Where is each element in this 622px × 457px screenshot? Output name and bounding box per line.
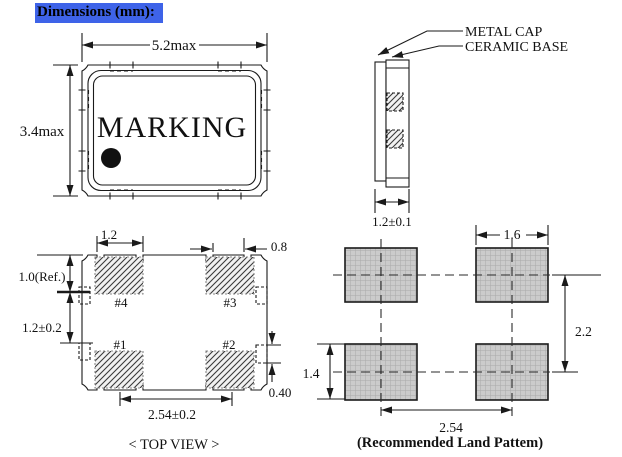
vpitch-dim-label: 1.2±0.2 <box>22 320 62 335</box>
ceramic-base-label: CERAMIC BASE <box>465 40 568 55</box>
pad-2-label: #2 <box>223 337 236 352</box>
notch-dim-label: 0.8 <box>271 239 287 254</box>
ceramic-base-leader <box>392 46 463 57</box>
top-view-caption: < TOP VIEW > <box>129 437 220 453</box>
land-hpitch-dim-label: 2.54 <box>439 420 463 435</box>
metal-cap-label: METAL CAP <box>465 25 543 40</box>
metal-cap-shape <box>375 62 386 181</box>
pad-1-label: #1 <box>114 337 127 352</box>
notch-extension-lines <box>213 238 244 252</box>
side-pad-lower <box>387 130 403 148</box>
marking-text: MARKING <box>97 111 247 144</box>
land-vpitch-dim-label: 2.2 <box>575 324 592 339</box>
height-dim-label: 3.4max <box>20 124 65 140</box>
ref-dim-label: 1.0(Ref.) <box>19 269 66 284</box>
thickness-extension-lines <box>375 189 409 213</box>
pad-4-label: #4 <box>115 295 129 310</box>
datasheet-dimensions-page: Dimensions (mm): <box>0 0 622 457</box>
pad-2 <box>206 351 254 388</box>
side-pad-upper <box>387 93 403 111</box>
castellation-dim-label: 0.40 <box>269 385 292 400</box>
land-pattern-caption: (Recommended Land Pattem) <box>357 435 543 451</box>
metal-cap-leader <box>378 31 463 55</box>
thickness-dim-label: 1.2±0.1 <box>372 214 412 229</box>
package-top-view: MARKING 5.2max 3.4max <box>20 33 271 200</box>
pin1-indicator-dot <box>101 148 121 168</box>
land-height-dim-label: 1.4 <box>303 366 320 381</box>
pad-1 <box>95 351 143 388</box>
width-dim-label: 5.2max <box>152 38 197 54</box>
land-width-dim-label: 1.6 <box>504 227 521 242</box>
ceramic-base-shape <box>386 60 409 187</box>
pad-layout-view: #4 #3 #1 #2 1.2 0.8 1.0(Ref.) 1.2±0.2 <box>19 227 292 453</box>
pad-3 <box>206 257 254 294</box>
pad-3-label: #3 <box>224 295 237 310</box>
pad-width-dim-label: 1.2 <box>101 227 117 242</box>
pad-4 <box>95 257 143 294</box>
hpitch-dim-label: 2.54±0.2 <box>148 407 196 422</box>
castellation-ticks <box>266 345 281 363</box>
side-view: METAL CAP CERAMIC BASE 1.2±0.1 <box>372 25 568 229</box>
dimension-drawing: MARKING 5.2max 3.4max METAL CAP CERAMIC … <box>0 0 622 457</box>
land-pattern-view: 1.6 2.2 1.4 2.54 (Recommended Land Patte… <box>303 225 601 451</box>
